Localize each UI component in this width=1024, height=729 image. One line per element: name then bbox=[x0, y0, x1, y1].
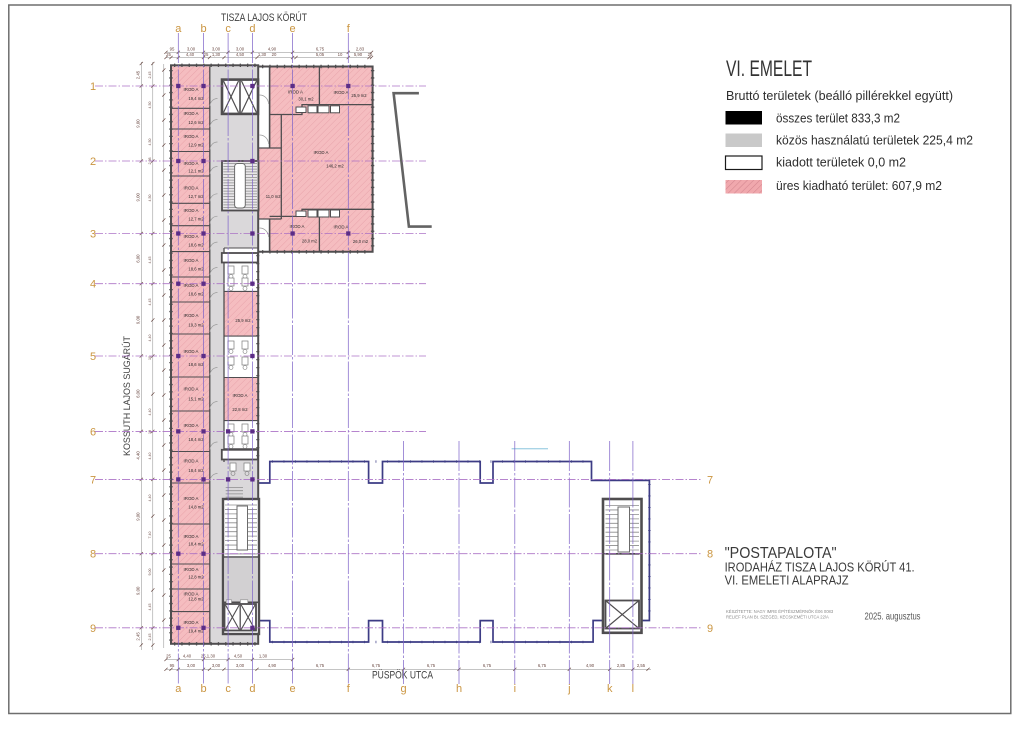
svg-text:üres kiadható terület: 607,9 m: üres kiadható terület: 607,9 m2 bbox=[776, 178, 942, 193]
svg-text:6,75: 6,75 bbox=[483, 663, 492, 668]
svg-text:18,6 m2: 18,6 m2 bbox=[188, 292, 204, 297]
svg-text:22,8 m2: 22,8 m2 bbox=[232, 407, 248, 412]
svg-text:9,00: 9,00 bbox=[136, 193, 141, 202]
svg-text:4: 4 bbox=[90, 279, 96, 291]
svg-text:3,00: 3,00 bbox=[187, 47, 196, 52]
svg-text:4,45: 4,45 bbox=[148, 299, 152, 306]
svg-text:4,50: 4,50 bbox=[236, 52, 245, 57]
svg-text:e: e bbox=[290, 683, 296, 695]
svg-text:9: 9 bbox=[90, 623, 96, 635]
svg-text:VI. EMELET: VI. EMELET bbox=[726, 56, 812, 81]
svg-text:1,30: 1,30 bbox=[258, 52, 267, 57]
svg-text:2,45: 2,45 bbox=[148, 72, 152, 79]
svg-text:PÜSPÖK UTCA: PÜSPÖK UTCA bbox=[372, 670, 434, 682]
svg-text:25: 25 bbox=[368, 52, 373, 57]
svg-text:11,0 m2: 11,0 m2 bbox=[266, 194, 281, 199]
svg-text:IROD A: IROD A bbox=[184, 459, 199, 464]
svg-text:10: 10 bbox=[338, 52, 343, 57]
svg-text:IROD A: IROD A bbox=[184, 111, 199, 116]
svg-text:2,45: 2,45 bbox=[136, 70, 141, 79]
svg-text:1,30: 1,30 bbox=[259, 654, 268, 659]
svg-text:19: 19 bbox=[148, 430, 152, 434]
svg-text:4,50: 4,50 bbox=[148, 195, 152, 202]
svg-text:4,90: 4,90 bbox=[586, 663, 595, 668]
svg-text:95: 95 bbox=[170, 663, 175, 668]
svg-text:12,1 m2: 12,1 m2 bbox=[188, 169, 204, 174]
svg-text:4,40: 4,40 bbox=[148, 409, 152, 416]
svg-text:12,7 m2: 12,7 m2 bbox=[188, 194, 204, 199]
svg-text:6,00: 6,00 bbox=[136, 389, 141, 398]
svg-text:18,6 m2: 18,6 m2 bbox=[188, 267, 204, 272]
svg-text:5,05: 5,05 bbox=[316, 52, 325, 57]
svg-text:IROD A: IROD A bbox=[184, 208, 199, 213]
svg-text:18,6 m2: 18,6 m2 bbox=[188, 243, 204, 248]
svg-text:KOSSUTH LAJOS SUGÁRÚT: KOSSUTH LAJOS SUGÁRÚT bbox=[122, 336, 133, 456]
svg-text:IROD A: IROD A bbox=[184, 620, 199, 625]
svg-text:18,4 m2: 18,4 m2 bbox=[188, 468, 204, 473]
svg-text:2,55: 2,55 bbox=[637, 663, 646, 668]
svg-text:IROD A: IROD A bbox=[184, 387, 199, 392]
svg-text:4,50: 4,50 bbox=[148, 139, 152, 146]
svg-text:4,40: 4,40 bbox=[183, 654, 192, 659]
svg-text:a: a bbox=[175, 23, 182, 35]
svg-text:4,40: 4,40 bbox=[148, 453, 152, 460]
svg-text:6: 6 bbox=[90, 426, 96, 438]
svg-text:IRODAHÁZ TISZA LAJOS KÖRÚT 41.: IRODAHÁZ TISZA LAJOS KÖRÚT 41. bbox=[725, 560, 915, 575]
svg-text:8: 8 bbox=[90, 549, 96, 561]
svg-text:6,75: 6,75 bbox=[316, 47, 325, 52]
svg-text:1,30: 1,30 bbox=[212, 52, 221, 57]
svg-text:a: a bbox=[175, 683, 182, 695]
svg-text:l: l bbox=[632, 683, 634, 695]
svg-text:25,9 m2: 25,9 m2 bbox=[235, 318, 251, 323]
svg-text:9,00: 9,00 bbox=[136, 119, 141, 128]
svg-text:30,1 m2: 30,1 m2 bbox=[298, 96, 314, 101]
svg-text:"POSTAPALOTA": "POSTAPALOTA" bbox=[725, 545, 837, 562]
svg-text:4,40: 4,40 bbox=[136, 451, 141, 460]
svg-text:4,50: 4,50 bbox=[234, 654, 243, 659]
svg-text:IROD A: IROD A bbox=[184, 234, 199, 239]
svg-text:IROD A: IROD A bbox=[334, 224, 349, 229]
svg-text:IROD A: IROD A bbox=[290, 224, 305, 229]
svg-text:12,8 m2: 12,8 m2 bbox=[188, 597, 204, 602]
svg-text:28,0 m2: 28,0 m2 bbox=[302, 239, 318, 244]
svg-text:i: i bbox=[514, 683, 516, 695]
svg-text:1: 1 bbox=[90, 81, 96, 93]
svg-text:10: 10 bbox=[148, 356, 152, 360]
svg-text:IROD A: IROD A bbox=[288, 89, 303, 94]
svg-text:j: j bbox=[567, 683, 570, 695]
svg-text:k: k bbox=[607, 683, 613, 695]
svg-text:7,40: 7,40 bbox=[148, 532, 152, 539]
svg-text:közös használatú területek 225: közös használatú területek 225,4 m2 bbox=[776, 133, 973, 148]
svg-text:7: 7 bbox=[90, 474, 96, 486]
svg-text:RELIEF PLAN Bt. SZEGED, KECSKE: RELIEF PLAN Bt. SZEGED, KECSKEMÉTI UTCA … bbox=[726, 615, 829, 620]
svg-text:2: 2 bbox=[90, 156, 96, 168]
svg-text:KÉSZÍTETTE: NAGY IMRE ÉPÍTÉSZM: KÉSZÍTETTE: NAGY IMRE ÉPÍTÉSZMÉRNÖK É06 … bbox=[726, 609, 834, 614]
svg-text:12,6 m2: 12,6 m2 bbox=[188, 120, 204, 125]
svg-text:2,45: 2,45 bbox=[148, 634, 152, 641]
svg-text:IROD A: IROD A bbox=[184, 496, 199, 501]
svg-text:kiadott területek 0,0 m2: kiadott területek 0,0 m2 bbox=[776, 155, 906, 170]
svg-text:3,00: 3,00 bbox=[212, 663, 221, 668]
svg-text:Bruttó területek (beálló pillé: Bruttó területek (beálló pillérekkel egy… bbox=[726, 88, 953, 103]
svg-text:4,40: 4,40 bbox=[148, 335, 152, 342]
svg-text:összes terület 833,3 m2: összes terület 833,3 m2 bbox=[776, 111, 900, 126]
svg-text:25: 25 bbox=[166, 52, 171, 57]
svg-text:6,75: 6,75 bbox=[316, 663, 325, 668]
svg-text:4,50: 4,50 bbox=[148, 102, 152, 109]
svg-text:8: 8 bbox=[707, 549, 713, 561]
svg-text:6,00: 6,00 bbox=[136, 254, 141, 263]
svg-text:14,8 m2: 14,8 m2 bbox=[188, 505, 204, 510]
svg-text:6,75: 6,75 bbox=[427, 663, 436, 668]
svg-text:IROD A: IROD A bbox=[184, 313, 199, 318]
svg-text:IROD A: IROD A bbox=[184, 349, 199, 354]
svg-text:25: 25 bbox=[204, 52, 209, 57]
svg-text:9: 9 bbox=[707, 623, 713, 635]
svg-text:18,4 m2: 18,4 m2 bbox=[188, 437, 204, 442]
svg-text:3,00: 3,00 bbox=[187, 663, 196, 668]
svg-text:2,85: 2,85 bbox=[617, 663, 626, 668]
svg-text:IROD A: IROD A bbox=[184, 567, 199, 572]
svg-text:25,1,30: 25,1,30 bbox=[201, 654, 216, 659]
svg-text:d: d bbox=[249, 683, 255, 695]
svg-text:4,40: 4,40 bbox=[186, 52, 195, 57]
svg-text:9,00: 9,00 bbox=[136, 512, 141, 521]
svg-text:146,2 m2: 146,2 m2 bbox=[326, 164, 344, 169]
svg-text:3,00: 3,00 bbox=[236, 663, 245, 668]
svg-text:3,00: 3,00 bbox=[212, 47, 221, 52]
svg-text:4,90: 4,90 bbox=[268, 47, 277, 52]
svg-text:4,45: 4,45 bbox=[148, 604, 152, 611]
svg-text:IROD A: IROD A bbox=[184, 87, 199, 92]
svg-text:IROD A: IROD A bbox=[314, 150, 329, 155]
svg-text:2025. augusztus: 2025. augusztus bbox=[865, 611, 921, 623]
svg-text:19,3 m2: 19,3 m2 bbox=[188, 323, 204, 328]
svg-text:4,45: 4,45 bbox=[148, 257, 152, 264]
svg-text:26,0 m2: 26,0 m2 bbox=[353, 239, 369, 244]
svg-text:3: 3 bbox=[90, 229, 96, 241]
svg-text:3,00: 3,00 bbox=[236, 47, 245, 52]
svg-text:7: 7 bbox=[707, 474, 713, 486]
svg-text:IROD A: IROD A bbox=[233, 393, 248, 398]
svg-text:g: g bbox=[400, 683, 406, 695]
svg-text:95: 95 bbox=[170, 47, 175, 52]
svg-text:IROD A: IROD A bbox=[184, 134, 199, 139]
svg-text:IROD A: IROD A bbox=[184, 161, 199, 166]
svg-text:25,9 m2: 25,9 m2 bbox=[351, 93, 367, 98]
svg-text:5,90: 5,90 bbox=[354, 52, 363, 57]
svg-text:b: b bbox=[200, 683, 206, 695]
svg-text:h: h bbox=[456, 683, 462, 695]
svg-text:15,1 m2: 15,1 m2 bbox=[188, 397, 204, 402]
svg-text:c: c bbox=[225, 683, 231, 695]
svg-text:9,00: 9,00 bbox=[136, 586, 141, 595]
svg-text:12,8 m2: 12,8 m2 bbox=[188, 575, 204, 580]
svg-text:6,75: 6,75 bbox=[372, 663, 381, 668]
svg-text:6,75: 6,75 bbox=[538, 663, 547, 668]
svg-text:2,45: 2,45 bbox=[136, 632, 141, 641]
svg-text:4,90: 4,90 bbox=[268, 663, 277, 668]
svg-text:19,4 m2: 19,4 m2 bbox=[188, 96, 204, 101]
svg-text:5: 5 bbox=[90, 351, 96, 363]
svg-text:IROD A: IROD A bbox=[184, 258, 199, 263]
svg-text:IROD A: IROD A bbox=[334, 90, 349, 95]
svg-text:2,83: 2,83 bbox=[356, 47, 365, 52]
svg-text:IROD A: IROD A bbox=[184, 423, 199, 428]
svg-text:25: 25 bbox=[166, 654, 171, 659]
svg-text:IROD A: IROD A bbox=[184, 186, 199, 191]
svg-text:12,7 m2: 12,7 m2 bbox=[188, 217, 204, 222]
svg-text:9,00: 9,00 bbox=[136, 315, 141, 324]
svg-text:9,00: 9,00 bbox=[148, 569, 152, 576]
svg-text:20: 20 bbox=[272, 52, 277, 57]
svg-text:VI. EMELETI ALAPRAJZ: VI. EMELETI ALAPRAJZ bbox=[725, 574, 849, 588]
svg-text:4,40: 4,40 bbox=[148, 495, 152, 502]
svg-text:IROD A: IROD A bbox=[184, 534, 199, 539]
svg-text:18,6 m2: 18,6 m2 bbox=[188, 362, 204, 367]
svg-text:18,4 m2: 18,4 m2 bbox=[188, 542, 204, 547]
svg-text:12,9 m2: 12,9 m2 bbox=[188, 143, 204, 148]
